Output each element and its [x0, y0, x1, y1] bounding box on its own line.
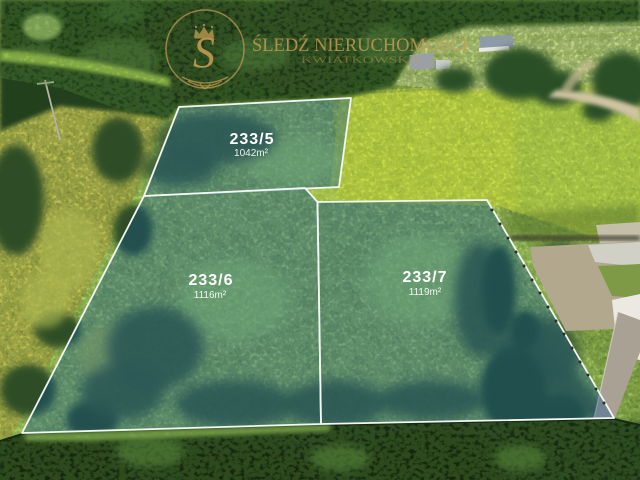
svg-text:ŚLEDŹ NIERUCHOMOŚCI: ŚLEDŹ NIERUCHOMOŚCI: [252, 34, 468, 56]
svg-text:233/5: 233/5: [229, 131, 274, 148]
svg-text:233/6: 233/6: [188, 272, 233, 289]
svg-text:1042m²: 1042m²: [234, 148, 269, 159]
svg-text:1116m²: 1116m²: [194, 290, 227, 301]
svg-text:S: S: [193, 28, 215, 77]
svg-text:KWIATKOWSKA: KWIATKOWSKA: [301, 56, 420, 66]
svg-text:233/7: 233/7: [402, 269, 447, 286]
svg-text:1119m²: 1119m²: [409, 287, 442, 298]
